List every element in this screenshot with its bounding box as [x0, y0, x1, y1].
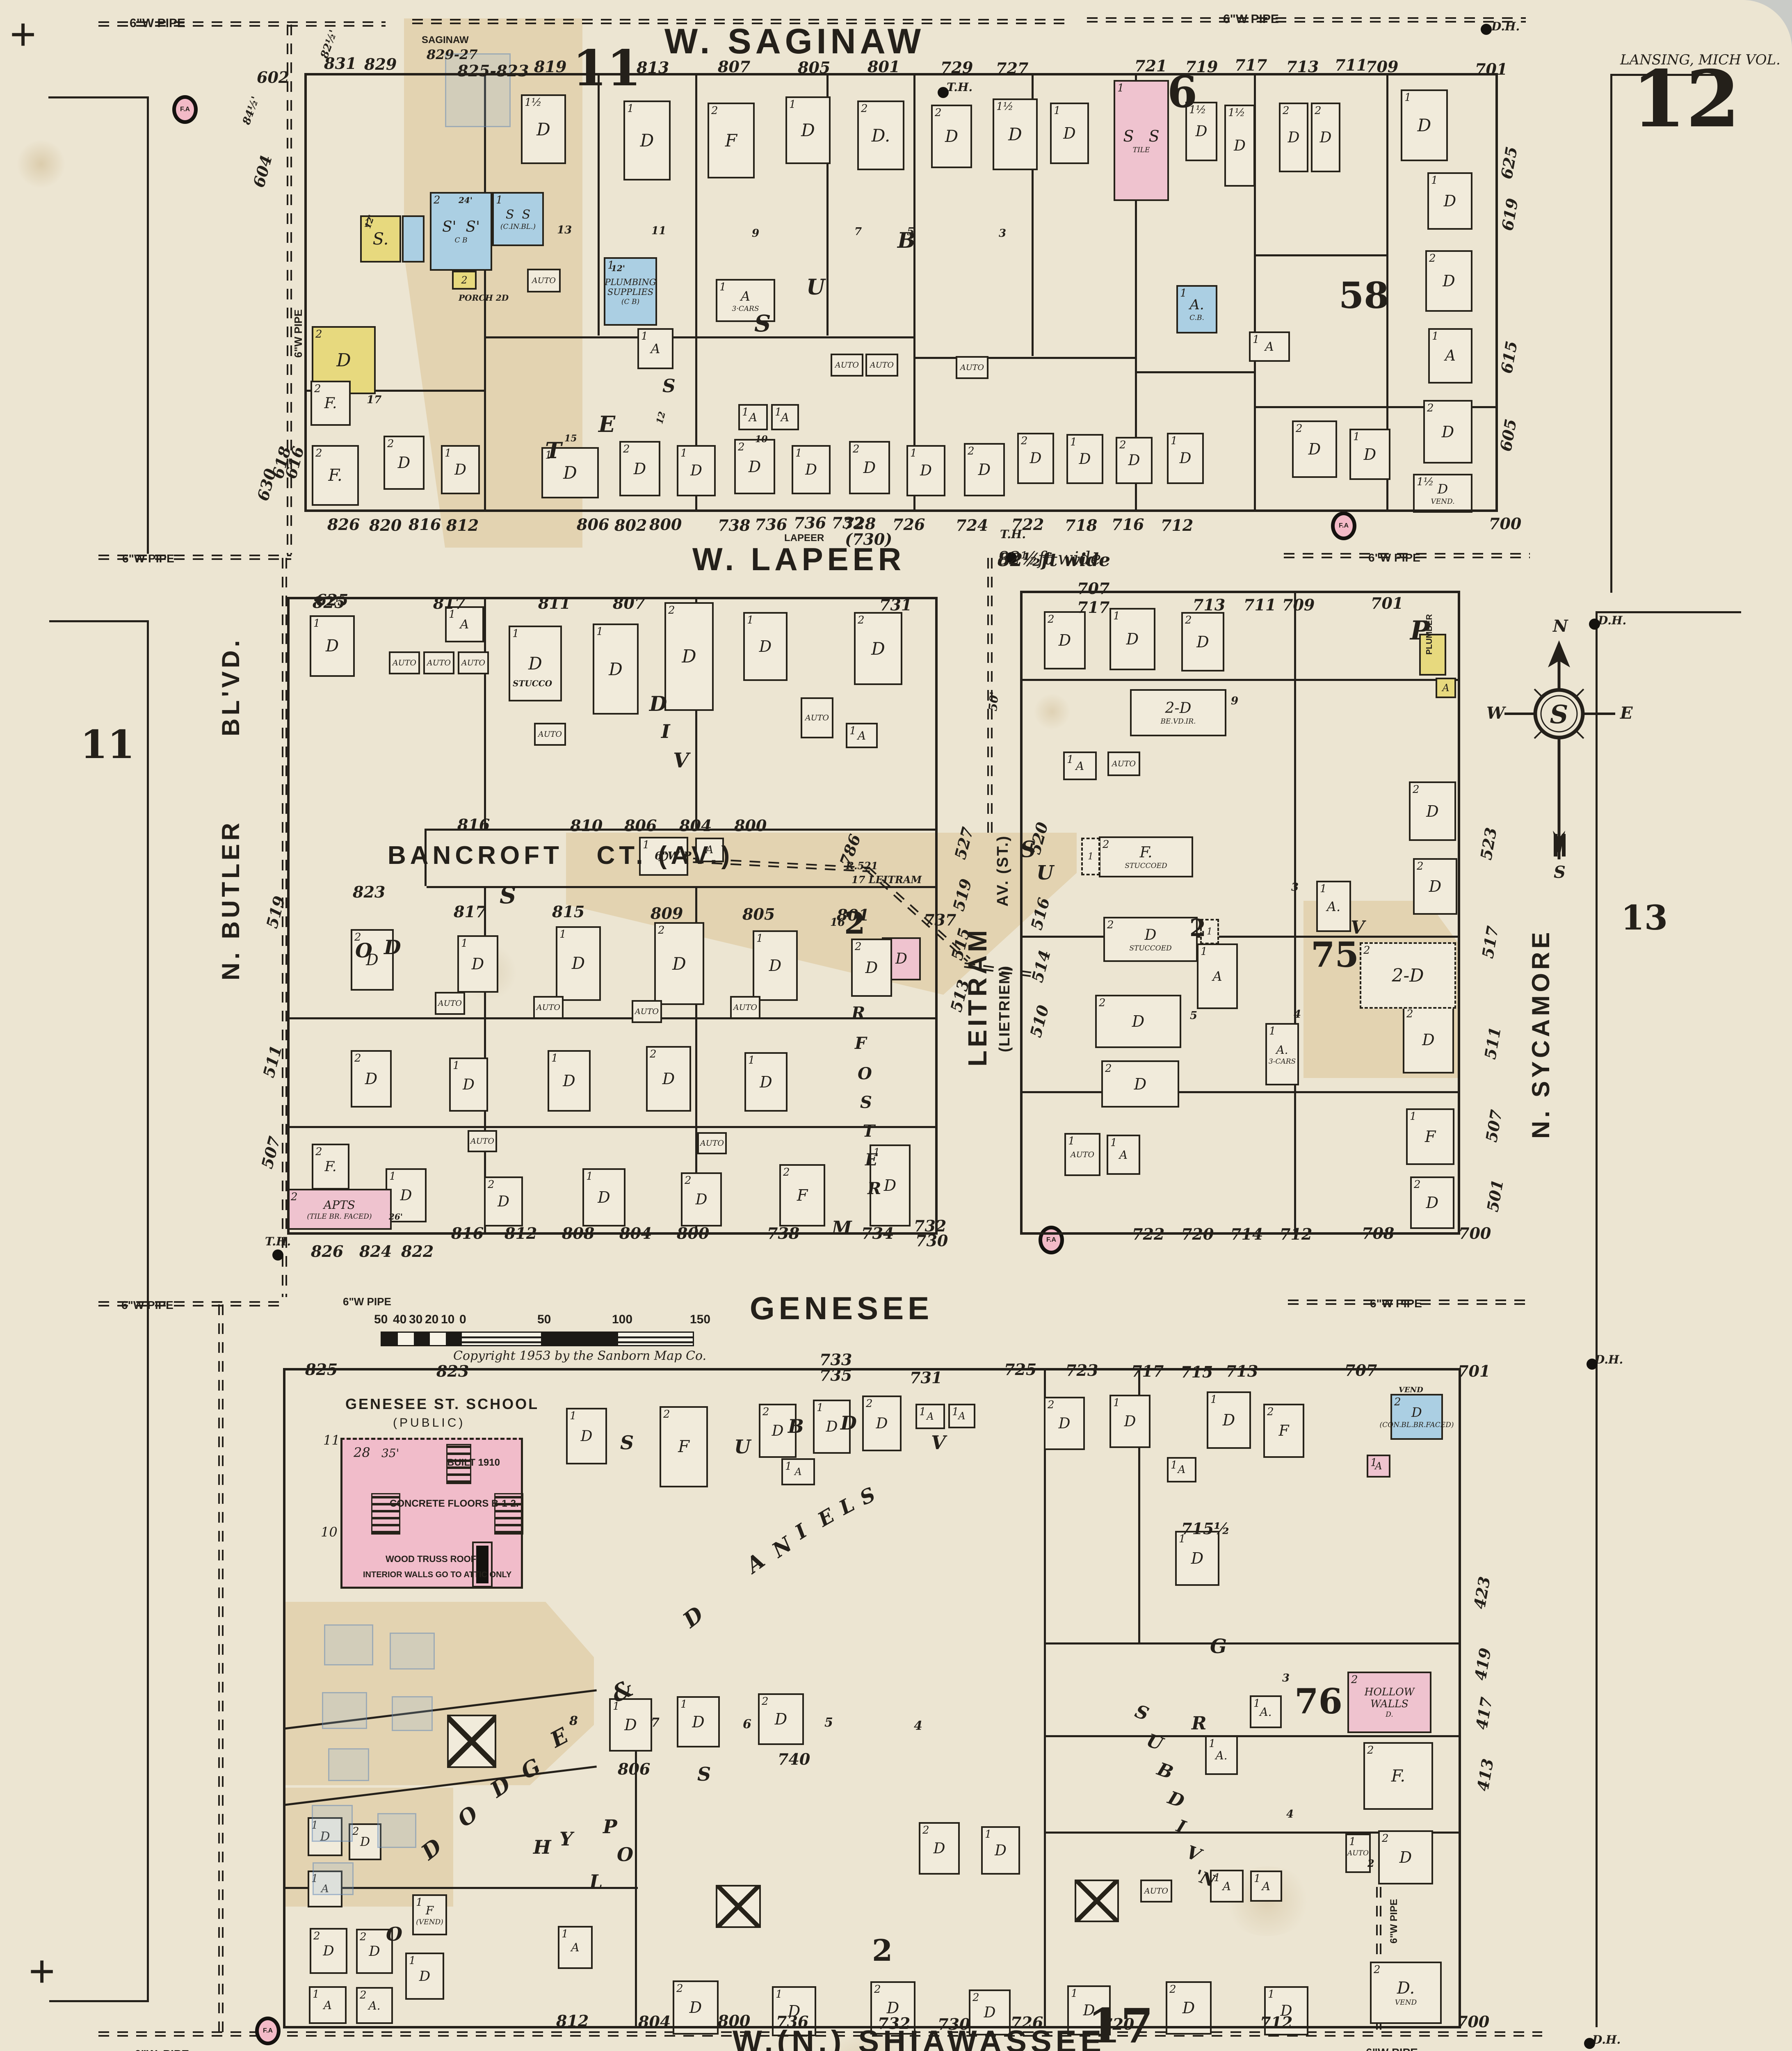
house-number: 517 — [1478, 925, 1502, 960]
school-roof-label: WOOD TRUSS ROOF — [386, 1554, 476, 1565]
adjacent-sheet-right: 13 — [1621, 898, 1668, 938]
lot-line — [49, 2000, 149, 2002]
house-number: 726 — [893, 515, 925, 534]
street-label-bancroft: BANCROFT CT. (AV.) — [388, 841, 734, 870]
block-saginaw-lapeer — [304, 73, 1498, 512]
house-number: 419 — [1471, 1647, 1495, 1682]
house-number: 716 — [1112, 515, 1144, 534]
house-number: 604 — [249, 153, 276, 189]
school-lot-11: 11 — [323, 1432, 340, 1448]
map-annotation: 6"W PIPE — [1223, 12, 1279, 26]
street-label-lapeer: W. LAPEER — [692, 541, 905, 578]
house-number: 700 — [1489, 514, 1521, 533]
scale-bar-tick: 150 — [690, 1313, 710, 1327]
house-number: 826 — [311, 1242, 343, 1261]
scale-bar-segment — [462, 1333, 541, 1345]
map-annotation: 6"W PIPE — [122, 552, 174, 565]
house-number: 413 — [1473, 1757, 1497, 1793]
map-annotation: T.H. — [1000, 528, 1026, 541]
house-number: 738 — [718, 516, 750, 534]
street-label-leitram: LEITRAM — [962, 878, 993, 1067]
house-number: 701 — [1458, 1362, 1490, 1380]
map-annotation: D.H. — [1491, 20, 1520, 33]
house-number: 602 — [257, 68, 289, 87]
map-annotation: 50' — [986, 691, 1001, 712]
house-number: 700 — [1459, 1224, 1491, 1242]
sanborn-map-sheet: 1S.2S' S'C B1S S(C.IN.BL.)22D2F.1½D1D2F1… — [0, 0, 1792, 2051]
house-number: 423 — [1470, 1575, 1494, 1610]
school-lot-10: 10 — [321, 1524, 338, 1540]
school-walls-label: INTERIOR WALLS GO TO ATTIC ONLY — [363, 1570, 511, 1580]
house-number: 717 — [1235, 56, 1267, 74]
map-annotation: 6"W PIPE — [1370, 1297, 1422, 1310]
scale-bar-tick: 50 — [537, 1313, 551, 1327]
house-number: 721 — [1135, 57, 1167, 75]
map-annotation: 6"W PIPE — [292, 309, 305, 358]
scale-bar — [381, 1332, 694, 1346]
fire-alarm-label: F.A — [1046, 1236, 1056, 1244]
block-number-2c: 2 — [872, 1933, 893, 1968]
house-number: 736 — [755, 515, 787, 534]
scale-bar-tick: 50 — [374, 1313, 388, 1327]
scale-bar-tick: 20 — [425, 1313, 438, 1327]
block-number-2a: 2 — [844, 906, 865, 941]
svg-text:S: S — [1550, 699, 1568, 729]
scale-bar-segment — [430, 1333, 446, 1345]
compass-east: E — [1620, 703, 1633, 723]
map-annotation: 829-27 — [427, 47, 478, 62]
house-number: 812 — [446, 516, 479, 534]
scale-bar-segment — [382, 1333, 398, 1345]
house-number: 625 — [1497, 145, 1521, 180]
house-number: 718 — [1065, 516, 1097, 534]
water-pipe-line — [218, 1304, 224, 2035]
house-number: 829 — [364, 55, 397, 73]
house-number: 820 — [369, 516, 402, 534]
scale-bar-tick: 10 — [441, 1313, 454, 1327]
copyright: Copyright 1953 by the Sanborn Map Co. — [453, 1349, 706, 1363]
house-number: 711 — [1335, 56, 1367, 74]
scale-bar-tick: 40 — [393, 1313, 406, 1327]
house-number: 501 — [1483, 1178, 1507, 1213]
street-label-butler-blvd: BL'VD. — [217, 638, 245, 736]
scale-bar-segment — [541, 1333, 618, 1345]
house-number: 605 — [1496, 418, 1520, 453]
hydrant-dot — [272, 1249, 283, 1261]
school-subtitle: (PUBLIC) — [393, 1416, 465, 1430]
map-annotation: 84½' — [240, 95, 262, 126]
block-number-58: 58 — [1339, 274, 1389, 317]
house-number: 523 — [1477, 826, 1500, 861]
register-cross-top-left: + — [10, 8, 36, 60]
map-annotation: 6"W PIPE — [121, 1299, 173, 1312]
scale-bar-tick: 0 — [459, 1313, 466, 1327]
block-number-6: 6 — [1167, 66, 1197, 117]
map-annotation: 6"W. PIPE — [135, 2048, 189, 2051]
street-label-shiawassee: W.(N.) SHIAWASSEE — [733, 2024, 1105, 2051]
map-annotation: SAGINAW — [422, 34, 469, 46]
water-pipe-line — [282, 558, 287, 1297]
lot-line — [48, 96, 149, 98]
street-label-leitram-paren: (LIETRIEM) — [996, 917, 1013, 1052]
school-built-label: BUILT 1910 — [447, 1457, 500, 1469]
house-number: 507 — [1482, 1108, 1506, 1144]
fire-alarm-label: F.A — [1339, 522, 1349, 530]
street-label-genesee: GENESEE — [750, 1290, 933, 1327]
house-number: 630 — [253, 466, 280, 502]
scale-bar-segment — [618, 1333, 693, 1345]
block-number-2b: 2 — [1189, 914, 1206, 942]
fire-alarm-label: F.A — [263, 2027, 273, 2035]
block-number-76: 76 — [1294, 1681, 1342, 1722]
street-label-bancroft-word1: BANCROFT — [388, 841, 563, 870]
lot-line — [49, 620, 149, 622]
street-label-butler: N. BUTLER — [217, 775, 245, 980]
house-number: 712 — [1161, 516, 1193, 534]
house-number: 417 — [1472, 1696, 1496, 1731]
map-annotation: D.H. — [1592, 2033, 1621, 2046]
house-number: 511 — [1481, 1025, 1504, 1061]
map-annotation: 6"W PIPE — [130, 16, 185, 30]
scale-bar-segment — [446, 1333, 462, 1345]
house-number: 816 — [409, 515, 441, 534]
water-pipe-line — [1087, 17, 1526, 23]
house-number: 822 — [401, 1242, 434, 1261]
house-number: 826 — [327, 515, 360, 534]
compass-graphic: S — [1504, 638, 1615, 876]
hydrant-dot — [1584, 2038, 1595, 2049]
school-floors-label: CONCRETE FLOORS B-1-2. — [390, 1498, 519, 1510]
hydrant-dot — [1481, 24, 1492, 35]
map-annotation: D.H. — [1598, 614, 1626, 627]
block-number-11: 11 — [573, 39, 641, 97]
street-label-saginaw: W. SAGINAW — [664, 21, 925, 62]
street-label-bancroft-word2: CT. (AV.) — [597, 841, 734, 870]
house-number: 824 — [359, 1242, 392, 1261]
compass-south: S — [1554, 863, 1566, 882]
adjacent-sheet-left: 11 — [80, 722, 135, 767]
scale-bar-segment — [398, 1333, 414, 1345]
lot-line — [1610, 74, 1612, 593]
house-number: 619 — [1498, 197, 1522, 232]
house-number: 507 — [258, 1134, 284, 1170]
map-annotation: 6"W PIPE — [1368, 551, 1420, 564]
house-number: 527 — [951, 825, 977, 861]
map-annotation: D.H. — [1595, 1353, 1623, 1366]
hydrant-dot — [1587, 1359, 1598, 1370]
scale-bar-tick: 30 — [409, 1313, 422, 1327]
sheet-number: 12 — [1632, 53, 1740, 145]
street-label-leitram-alt: AV. (ST.) — [994, 792, 1012, 907]
fire-alarm-symbol: F.A — [172, 95, 198, 124]
scale-bar-segment — [414, 1333, 430, 1345]
lot-line — [147, 96, 149, 554]
street-width-note: 82½ft wide — [998, 548, 1101, 569]
fire-alarm-label: F.A — [180, 106, 190, 113]
house-number: 724 — [956, 516, 988, 534]
block-lapeer-genesee-west — [287, 597, 938, 1235]
fire-alarm-symbol: F.A — [255, 2017, 281, 2045]
house-number: 800 — [649, 515, 682, 534]
school-note-28: 28 — [354, 1445, 370, 1460]
hydrant-dot — [1589, 619, 1600, 630]
compass-west: W — [1486, 703, 1505, 723]
house-number: 806 — [577, 515, 609, 534]
map-annotation: 6"W PIPE — [343, 1295, 391, 1308]
compass-rose: S N W E S — [1504, 638, 1615, 876]
school-title: GENESEE ST. SCHOOL — [345, 1396, 539, 1413]
compass-north: N — [1553, 617, 1568, 636]
lot-line — [1598, 611, 1741, 613]
house-number: 700 — [1457, 2012, 1489, 2031]
house-number: 615 — [1497, 340, 1521, 375]
street-label-sycamore: N. SYCAMORE — [1527, 925, 1555, 1139]
school-note-35: 35' — [381, 1446, 399, 1460]
house-number: 802 — [614, 516, 647, 534]
block-lapeer-genesee-east — [1020, 591, 1460, 1235]
map-annotation: T.H. — [265, 1235, 291, 1248]
register-cross-bottom-left: + — [29, 1945, 55, 1997]
block-number-75: 75 — [1311, 934, 1359, 975]
map-annotation: 6"W PIPE — [1366, 2046, 1418, 2051]
fire-alarm-symbol: F.A — [1331, 512, 1356, 540]
scale-bar-tick: 100 — [612, 1313, 632, 1327]
